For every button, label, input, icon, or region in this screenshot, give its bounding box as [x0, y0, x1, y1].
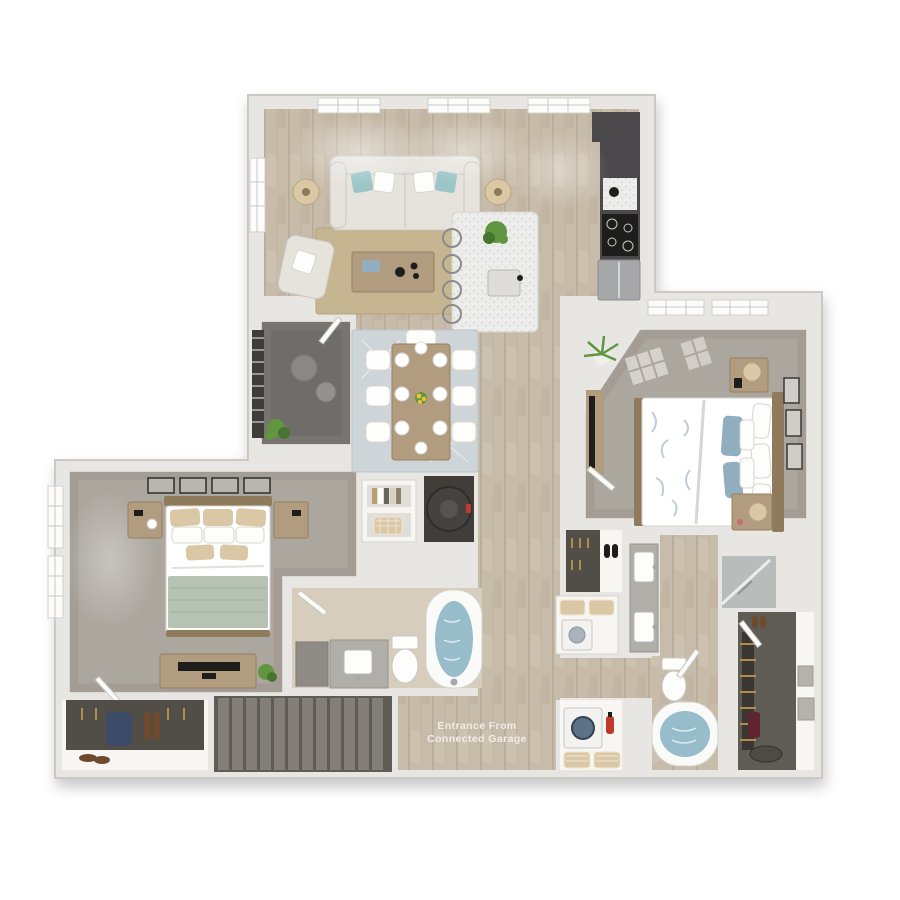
bathtub-2 — [652, 702, 718, 766]
table-lamp — [485, 179, 511, 205]
dresser-tv — [160, 654, 256, 688]
bedside-lamp — [749, 503, 767, 521]
laundry-basket — [564, 752, 590, 768]
faucet — [653, 565, 658, 570]
window — [712, 300, 768, 315]
floor-plan-svg: Entrance From Connected Garage — [0, 0, 900, 900]
tub-faucet — [451, 679, 458, 686]
washer — [564, 708, 602, 748]
garment-red — [748, 712, 760, 738]
pouf-chair — [316, 382, 336, 402]
tv-screen — [178, 662, 240, 671]
pouf-chair — [291, 355, 317, 381]
coffee-table — [352, 252, 434, 292]
faucet — [355, 675, 361, 681]
bathtub-1 — [426, 590, 482, 688]
bedside-lamp — [743, 363, 761, 381]
entrance-label-line1: Entrance From — [437, 720, 516, 732]
entrance-label-line2: Connected Garage — [427, 733, 527, 745]
sage-blanket — [168, 576, 268, 628]
toilet-1 — [392, 636, 418, 683]
kitchen-island — [443, 212, 538, 332]
tv-console — [586, 390, 604, 474]
cooktop — [602, 214, 638, 256]
headboard — [164, 496, 272, 506]
bed-1 — [164, 496, 272, 637]
books — [372, 488, 401, 504]
heater-valve — [466, 504, 471, 513]
dining-area — [352, 330, 478, 472]
window — [528, 98, 590, 113]
duffel-bag — [750, 746, 782, 762]
rear-passage-floor — [560, 658, 652, 698]
flower-centerpiece — [415, 392, 427, 404]
faucet — [517, 275, 523, 281]
coffee-maker — [609, 187, 619, 197]
double-vanity — [630, 544, 658, 652]
stacked-washer — [562, 620, 592, 650]
storage-basket — [589, 600, 614, 615]
hall-shoe-closet — [566, 530, 622, 592]
nightstand — [128, 502, 162, 538]
window — [250, 158, 265, 232]
window — [648, 300, 704, 315]
counter-section — [603, 178, 637, 210]
storage-basket — [560, 600, 585, 615]
window — [318, 98, 380, 113]
nightstand — [732, 494, 772, 530]
faucet — [653, 625, 658, 630]
window — [48, 486, 63, 548]
window — [428, 98, 490, 113]
hanging-coat — [106, 712, 132, 746]
refrigerator — [598, 260, 640, 300]
walk-in-closet — [738, 612, 814, 770]
hallway-floor — [478, 296, 560, 700]
floor-plan-image: Entrance From Connected Garage — [0, 0, 900, 900]
shower — [722, 556, 776, 608]
wall-art-frames — [784, 378, 802, 469]
laundry-basket — [594, 752, 620, 768]
water-heater-closet — [424, 476, 474, 542]
nightstand — [274, 502, 308, 538]
window — [48, 556, 63, 618]
nightstand — [730, 358, 768, 392]
tv-screen — [589, 396, 595, 468]
island-sink — [488, 270, 520, 296]
toilet-2 — [662, 658, 686, 701]
table-lamp — [293, 179, 319, 205]
headboard — [772, 392, 784, 532]
hall-linen-closet — [556, 596, 618, 654]
bath-cabinet — [296, 642, 328, 686]
vanity-1 — [330, 640, 388, 688]
linen-shelves — [362, 480, 416, 542]
entry-hall: Entrance From Connected Garage — [427, 720, 527, 745]
